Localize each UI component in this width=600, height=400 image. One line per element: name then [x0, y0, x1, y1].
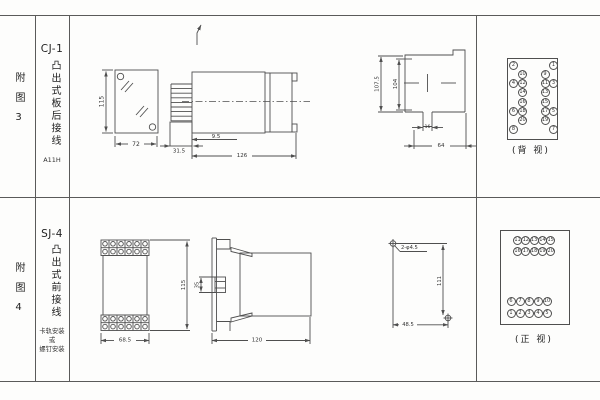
screw-terminal-icon: [111, 249, 116, 254]
screw-terminal-icon: [103, 317, 108, 322]
terminal-12: 12: [518, 79, 527, 88]
screw-terminal-icon: [111, 242, 116, 247]
fig3-side-view-drawing: 9.5 31.5 126: [160, 25, 310, 159]
terminal-8: 8: [509, 125, 518, 134]
screw-terminal-icon: [143, 242, 148, 247]
screw-terminal-icon: [135, 242, 140, 247]
terminal-10: 10: [543, 297, 552, 306]
fig3-cutout-width-dim: 64: [438, 143, 445, 149]
screw-terminal-icon: [135, 324, 140, 329]
fig3-front-view-drawing: 115 72: [99, 70, 159, 148]
terminal-3: 3: [525, 309, 534, 318]
screw-terminal-icon: [119, 324, 124, 329]
fig3-rear-view-caption: (背 视): [496, 143, 566, 156]
terminal-20: 20: [518, 116, 527, 125]
terminal-12: 12: [521, 236, 530, 245]
terminal-6: 6: [507, 297, 516, 306]
terminal-pins: [171, 84, 192, 121]
terminal-20: 20: [546, 247, 555, 256]
screw-terminal-icon: [127, 249, 132, 254]
terminal-1: 1: [507, 309, 516, 318]
terminal-2: 2: [516, 309, 525, 318]
screw-terminal-icon: [111, 317, 116, 322]
terminal-4: 4: [534, 309, 543, 318]
screw-terminal-icon: [119, 317, 124, 322]
fig3-front-width-dim: 72: [132, 141, 140, 148]
terminal-5: 5: [543, 309, 552, 318]
fig4-drill-hole-label: 2-φ4.5: [401, 245, 418, 251]
fig4-drill-view-drawing: 2-φ4.5 111 48.5: [389, 239, 453, 328]
fig4-side-rail-dim: 35: [195, 282, 201, 288]
terminal-7: 7: [516, 297, 525, 306]
fig4-drill-vertical-dim: 111: [437, 276, 443, 286]
fig3-front-height-dim: 115: [99, 96, 106, 108]
terminal-19: 19: [541, 116, 550, 125]
screw-terminal-icon: [119, 249, 124, 254]
terminal-5: 5: [549, 107, 558, 116]
screw-terminal-icon: [111, 324, 116, 329]
terminal-4: 4: [509, 79, 518, 88]
terminal-3: 3: [549, 79, 558, 88]
terminal-8: 8: [525, 297, 534, 306]
fig4-drill-horizontal-dim: 48.5: [402, 322, 414, 328]
fig3-side-offset-dim: 9.5: [212, 134, 221, 140]
fig4-front-view-caption: (正 视): [499, 332, 569, 345]
front-terminal-grid: 1112131415161718192067891012345: [500, 230, 570, 325]
terminal-18: 18: [518, 107, 527, 116]
screw-terminal-icon: [143, 317, 148, 322]
fig4-front-view-drawing: 68.5 115: [101, 240, 190, 344]
screw-terminal-icon: [103, 242, 108, 247]
terminal-6: 6: [509, 107, 518, 116]
centerline-ticks: [404, 74, 456, 92]
screw-terminal-icon: [103, 249, 108, 254]
fig4-side-depth-dim: 120: [252, 338, 263, 344]
screw-terminal-icon: [135, 317, 140, 322]
terminal-10: 10: [518, 70, 527, 79]
terminal-16: 16: [518, 98, 527, 107]
fig3-cutout-outer-dim: 107.5: [375, 76, 381, 92]
screw-terminal-icon: [143, 249, 148, 254]
rear-terminal-grid: 2110941211314131615618175201987: [507, 58, 558, 140]
screw-terminal-icon: [143, 324, 148, 329]
screw-terminal-icon: [119, 242, 124, 247]
terminal-14: 14: [518, 88, 527, 97]
fig3-side-length-dim: 126: [237, 153, 248, 159]
fig3-side-pin-dim: 31.5: [173, 149, 186, 155]
terminal-9: 9: [541, 70, 550, 79]
terminal-15: 15: [546, 236, 555, 245]
fig3-cutout-view-drawing: 107.5 104 16 64: [375, 50, 477, 149]
fig4-front-height-dim: 115: [181, 279, 187, 290]
terminal-13: 13: [541, 88, 550, 97]
screw-terminal-icon: [127, 242, 132, 247]
screw-terminal-icon: [127, 324, 132, 329]
terminal-9: 9: [534, 297, 543, 306]
screw-terminal-icon: [127, 317, 132, 322]
terminal-7: 7: [549, 125, 558, 134]
fig4-side-view-drawing: 35 120: [195, 238, 312, 344]
hatch-marks: [121, 81, 148, 117]
terminal-17: 17: [521, 247, 530, 256]
terminal-15: 15: [541, 98, 550, 107]
screw-terminal-icon: [103, 324, 108, 329]
terminal-1: 1: [549, 61, 558, 70]
terminal-2: 2: [509, 61, 518, 70]
datasheet-page: 附图3 CJ-1 凸出式板后接线 A11H 附图4 SJ-4 凸出式前接线 卡轨…: [0, 0, 600, 400]
fig3-cutout-slot-dim: 16: [425, 124, 431, 130]
fig4-front-width-dim: 68.5: [119, 338, 132, 344]
screw-terminal-icon: [135, 249, 140, 254]
fig3-cutout-inner-dim: 104: [393, 78, 399, 89]
